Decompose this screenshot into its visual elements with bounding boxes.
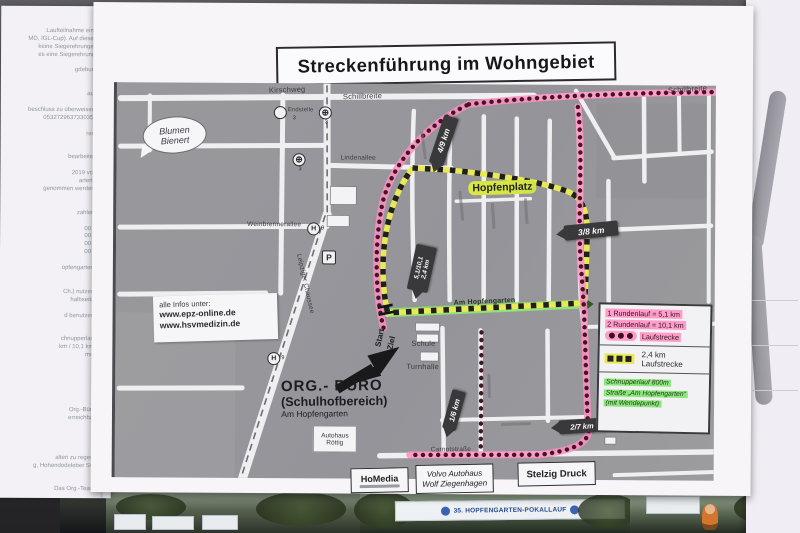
schule-label: Schule — [411, 339, 435, 348]
page-title: Streckenführung im Wohngebiet — [297, 50, 594, 77]
tram-line-number: 3 — [325, 119, 328, 125]
parking-icon: P — [322, 250, 336, 264]
map-legend: 1 Rundenlauf = 5,1 km 2 Rundenlauf = 10,… — [596, 302, 713, 434]
sponsor-name: HoMedia — [361, 473, 399, 484]
hopfenplatz-label: Hopfenplatz — [468, 180, 536, 196]
table-rule — [752, 300, 798, 301]
map-title-box: Streckenführung im Wohngebiet — [276, 41, 617, 86]
org-line: ORG.- BÜRO — [281, 377, 387, 395]
street-label-schillbreite-west: Schillbreite — [343, 91, 382, 101]
left-paper-text: Laufteilnahme eineMD, IGL-Cup). Auf dies… — [0, 20, 97, 495]
street-label-weinbrennerallee: Weinbrennerallee — [247, 221, 301, 228]
tree-foliage — [256, 492, 346, 526]
event-sign — [646, 496, 700, 514]
banner-text: 35. HOPFENGARTEN-POKALLAUF — [454, 506, 567, 514]
marker-tip — [556, 227, 566, 240]
left-paper-line: Das Org.-Team — [0, 486, 95, 494]
tram-terminus-icon — [274, 106, 287, 119]
legend-schnupper1: Schnupperlauf 800m — [604, 378, 671, 386]
route-map-sheet: Streckenführung im Wohngebiet — [91, 2, 754, 496]
photo-strip-segment — [106, 492, 360, 533]
legend-km24: 2,4 km — [641, 350, 665, 359]
legend-section-schnupperlauf: Schnupperlauf 800m Straße „Am Hopfengart… — [598, 371, 709, 414]
street-map: Kirschweg Schillbreite Schillbreite Lind… — [112, 82, 716, 481]
bus-stop-icon: H — [307, 222, 320, 235]
legend-run2: 2 Rundenlauf = 10,1 km — [605, 319, 686, 330]
legend-section-2-4km: 2,4 kmLaufstrecke — [599, 344, 710, 373]
laufstrecke-dots-symbol — [605, 330, 637, 341]
info-box: alle Infos unter: www.epz-online.de www.… — [153, 293, 278, 343]
legend-schnupper3: (mit Wendepunkt) — [604, 399, 662, 407]
legend-run1: 1 Rundenlauf = 5,1 km — [605, 308, 682, 319]
legend-laufstrecke1: Laufstrecke — [640, 332, 681, 342]
runner-figure — [702, 504, 718, 530]
street-label-lindenallee: Lindenallee — [341, 155, 376, 162]
legend-2-4km: 2,4 kmLaufstrecke — [641, 350, 683, 369]
org-line: (Schulhofbereich) — [281, 394, 387, 409]
event-sign — [152, 516, 194, 530]
sponsor-name: Wolf Ziegenhagen — [422, 478, 487, 489]
street-label-carnotstrasse: Carnotstraße — [431, 446, 471, 453]
tram-stop-icon: ⊕ — [319, 106, 332, 119]
autohaus-line: Röttig — [326, 439, 343, 446]
turnhalle-label: Turnhalle — [406, 362, 439, 371]
marker-tip — [551, 421, 561, 434]
bus-stop-icon: H — [267, 352, 280, 365]
org-office-label: ORG.- BÜRO (Schulhofbereich) Am Hopfenga… — [281, 377, 388, 419]
event-sign — [114, 514, 146, 530]
tram-stop-icon: ⊕ — [293, 153, 306, 166]
bubble-line: Bienert — [160, 134, 189, 146]
club-logo — [441, 506, 450, 515]
photo-of-noticeboard: 35. HOPFENGARTEN-POKALLAUF Laufteilnahme… — [0, 0, 800, 533]
street-label-kirschweg: Kirschweg — [269, 85, 306, 95]
table-rule — [752, 390, 798, 391]
tram-line-number: 3 — [298, 166, 301, 172]
laufstrecke-squares-symbol — [604, 353, 634, 364]
event-sign — [202, 515, 238, 530]
right-notice-paper — [746, 0, 800, 533]
endstelle-label: Endstelle — [288, 107, 314, 113]
tram-line-number: 3 — [293, 115, 296, 121]
autohaus-roettig-box: Autohaus Röttig — [313, 425, 357, 452]
autohaus-line: Autohaus — [321, 432, 349, 439]
legend-section-laufstrecke: 1 Rundenlauf = 5,1 km 2 Rundenlauf = 10,… — [600, 304, 711, 346]
bus-line-number: 9 — [281, 355, 284, 361]
photo-strip-segment: 35. HOPFENGARTEN-POKALLAUF — [360, 492, 630, 533]
tree-foliage — [578, 494, 638, 528]
org-line: Am Hopfengarten — [281, 408, 387, 419]
sponsor-stelzig: Stelzig Druck — [517, 461, 595, 487]
marker-text: 2/7 km — [570, 421, 594, 431]
sponsor-subline-illegible — [360, 484, 400, 488]
sponsor-name: Stelzig Druck — [526, 468, 586, 480]
sponsor-volvo: Volvo Autohaus Wolf Ziegenhagen — [415, 463, 494, 494]
legend-laufstrecke2: Laufstrecke — [641, 359, 683, 369]
legend-schnupper2: Straße „Am Hopfengarten“ — [604, 389, 688, 398]
table-rule — [752, 345, 798, 346]
bus-line-number: 9 — [321, 225, 324, 231]
sponsor-homedia: HoMedia — [350, 467, 408, 493]
marker-text: 3/8 km — [577, 224, 604, 237]
